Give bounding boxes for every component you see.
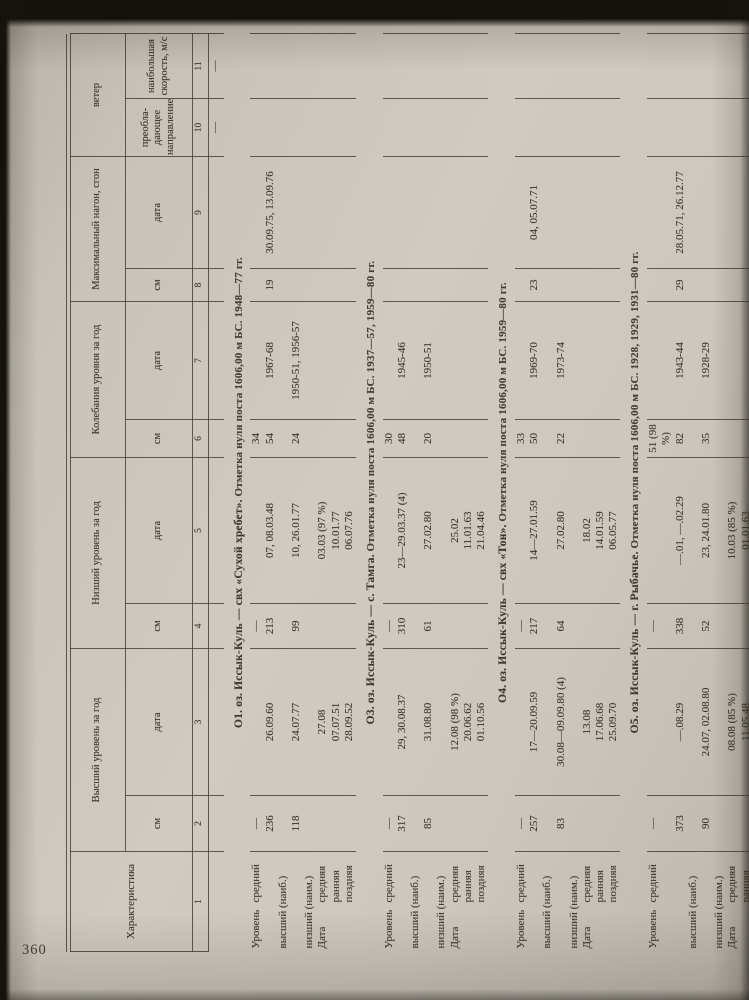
data-cell — [449, 157, 462, 269]
data-cell: 50 — [528, 420, 554, 458]
section-title: О5. оз. Иссык-Куль — г. Рыбачье. Отметка… — [620, 34, 647, 952]
data-cell — [594, 99, 607, 157]
data-cell — [330, 796, 343, 852]
data-cell — [594, 604, 607, 649]
data-cell — [726, 99, 739, 157]
row-label-sub: поздняя — [343, 865, 356, 902]
col-number: 11 — [192, 34, 208, 99]
row-label: низший (наим.) — [422, 852, 448, 952]
data-cell — [607, 604, 620, 649]
col-number: 3 — [192, 649, 208, 796]
row-label: Датасредняя — [581, 852, 594, 952]
section-title: О3. оз. Иссык-Куль — с. Тамга. Отметка н… — [356, 34, 383, 952]
data-cell — [647, 458, 673, 604]
col-number: 8 — [192, 269, 208, 302]
data-row: Датасредняя13.0818.02 — [581, 34, 594, 952]
data-cell — [607, 269, 620, 302]
data-cell — [462, 420, 475, 458]
data-cell: 20 — [422, 420, 448, 458]
data-cell — [647, 157, 673, 269]
col-number: 4 — [192, 604, 208, 649]
data-cell — [316, 302, 329, 420]
data-cell — [343, 269, 356, 302]
data-cell — [343, 604, 356, 649]
row-label-sub: поздняя — [475, 865, 488, 902]
station-gauge-note: Отметка нуля поста 1606,00 м БС. 1959—80… — [497, 282, 509, 522]
data-cell — [330, 99, 343, 157]
data-cell: 1950-51 — [422, 302, 448, 420]
row-label-sub: средняя — [316, 866, 329, 903]
data-cell — [449, 99, 462, 157]
data-cell — [208, 302, 224, 420]
data-cell: 11.05.48 — [740, 649, 749, 796]
row-label-sub: средняя — [581, 866, 594, 903]
data-row: поздняя28.09.5206.07.76 — [343, 34, 356, 952]
data-cell: 90 — [700, 796, 726, 852]
row-label: Уровеньсредний — [250, 852, 263, 952]
data-cell: 18.02 — [581, 458, 594, 604]
data-cell — [475, 269, 488, 302]
data-cell — [250, 99, 263, 157]
data-cell: 03.03 (97 %) — [316, 458, 329, 604]
data-cell: —.01, —.02.29 — [674, 458, 700, 604]
data-cell — [674, 34, 700, 99]
rotated-table-area: Характеристика Высший уровень за год Низ… — [66, 34, 722, 952]
data-cell: 217 — [528, 604, 554, 649]
data-row: Датасредняя27.0803.03 (97 %) — [316, 34, 329, 952]
data-cell — [343, 302, 356, 420]
lake-levels-table: Характеристика Высший уровень за год Низ… — [70, 33, 749, 952]
data-cell — [343, 34, 356, 99]
data-cell — [475, 99, 488, 157]
data-cell — [330, 420, 343, 458]
data-cell — [475, 302, 488, 420]
data-cell: 64 — [555, 604, 581, 649]
data-row: низший (наим.)9024.07, 02.08.805223, 24.… — [700, 34, 726, 952]
row-label-sub: средняя — [449, 866, 462, 903]
station-name: О5. оз. Иссык-Куль — г. Рыбачье. — [629, 551, 641, 733]
data-cell: 25.02 — [449, 458, 462, 604]
data-cell — [555, 157, 581, 269]
data-cell: 29 — [674, 269, 700, 302]
data-cell — [250, 302, 263, 420]
header-cm: см — [125, 796, 192, 852]
row-label: высший (наиб.) — [674, 852, 700, 952]
data-cell — [250, 34, 263, 99]
data-cell — [330, 269, 343, 302]
data-cell — [726, 157, 739, 269]
data-cell: 07, 08.03.48 — [264, 458, 290, 604]
data-cell — [726, 302, 739, 420]
data-cell: 06.07.76 — [343, 458, 356, 604]
data-cell: 14—27.01.59 — [528, 458, 554, 604]
book-page-scan: 360 Характеристика Высший уровень за год… — [0, 0, 749, 1000]
data-cell — [316, 269, 329, 302]
data-cell — [726, 269, 739, 302]
data-cell: 48 — [396, 420, 422, 458]
data-cell — [316, 796, 329, 852]
data-cell — [208, 420, 224, 458]
data-cell — [290, 99, 316, 157]
data-row: Уровеньсредний——51 (98 %) — [647, 34, 673, 952]
data-cell — [449, 302, 462, 420]
row-label-main: Дата — [316, 903, 329, 949]
data-cell: — — [647, 604, 673, 649]
data-cell — [422, 157, 448, 269]
row-label-main: Дата — [581, 903, 594, 949]
data-cell: 1943-44 — [674, 302, 700, 420]
data-cell: 27.08 — [316, 649, 329, 796]
data-cell — [449, 604, 462, 649]
data-cell — [449, 420, 462, 458]
data-row: ранняя11.05.4801.01.63 — [740, 34, 749, 952]
data-cell — [555, 99, 581, 157]
data-cell — [740, 269, 749, 302]
header-column-numbers: 1 2 3 4 5 6 7 8 9 10 11 — [192, 34, 208, 952]
data-cell: 21.04.46 — [475, 458, 488, 604]
data-cell: 20.06.62 — [462, 649, 475, 796]
data-cell — [330, 34, 343, 99]
data-row: Уровеньсредний——33 — [515, 34, 528, 952]
data-cell: 99 — [290, 604, 316, 649]
data-cell — [740, 99, 749, 157]
page-number: 360 — [22, 942, 47, 959]
data-cell — [250, 458, 263, 604]
station-gauge-note: Отметка нуля поста 1606,00 м БС. 1937—57… — [365, 261, 377, 552]
data-cell — [740, 796, 749, 852]
row-label: ранняя — [330, 852, 343, 952]
data-cell: 06.05.77 — [607, 458, 620, 604]
data-cell — [208, 796, 224, 852]
row-label-main: Уровень — [250, 903, 263, 949]
data-row: поздняя01.10.5621.04.46 — [475, 34, 488, 952]
data-cell: 04, 05.07.71 — [528, 157, 554, 269]
data-row: низший (наим.)8330.08—09.09.80 (4)6427.0… — [555, 34, 581, 952]
data-cell: 24 — [290, 420, 316, 458]
data-row: высший (наиб.)31729, 30.08.3731023—29.03… — [396, 34, 422, 952]
row-label-sub: средний — [383, 864, 396, 902]
data-cell: 29, 30.08.37 — [396, 649, 422, 796]
data-cell: 52 — [700, 604, 726, 649]
data-cell — [383, 458, 396, 604]
station-name: О1. оз. Иссык-Куль — свх «Сухой хребет». — [233, 499, 245, 728]
row-label: Датасредняя — [316, 852, 329, 952]
photo-dark-edge-top — [0, 0, 749, 27]
row-label-sub: низший (наим.) — [303, 876, 316, 949]
data-cell: 12.08 (98 %) — [449, 649, 462, 796]
data-cell: 28.05.71, 26.12.77 — [674, 157, 700, 269]
data-cell — [726, 796, 739, 852]
row-label: высший (наиб.) — [264, 852, 290, 952]
header-wind-speed: наибольшая скорость, м/с — [125, 34, 192, 99]
data-cell: 01.10.56 — [475, 649, 488, 796]
data-cell: 1969-70 — [528, 302, 554, 420]
data-cell — [515, 157, 528, 269]
data-cell: 22 — [555, 420, 581, 458]
data-row: Датасредняя12.08 (98 %)25.02 — [449, 34, 462, 952]
col-number: 7 — [192, 302, 208, 420]
header-characteristic: Характеристика — [70, 852, 192, 952]
data-cell — [316, 604, 329, 649]
data-cell — [726, 34, 739, 99]
photo-dark-edge-left — [0, 0, 11, 1000]
row-label: поздняя — [343, 852, 356, 952]
data-cell — [740, 604, 749, 649]
header-group-row: Характеристика Высший уровень за год Низ… — [70, 34, 125, 952]
data-cell — [462, 302, 475, 420]
data-cell — [475, 604, 488, 649]
data-cell — [290, 269, 316, 302]
data-cell: 17—20.09.59 — [528, 649, 554, 796]
data-cell — [208, 458, 224, 604]
data-cell: 28.09.52 — [343, 649, 356, 796]
data-cell — [740, 302, 749, 420]
data-cell: — — [383, 604, 396, 649]
data-cell: 30 — [383, 420, 396, 458]
row-label-main: Уровень — [515, 903, 528, 949]
data-cell — [581, 420, 594, 458]
data-cell: 1950-51, 1956-57 — [290, 302, 316, 420]
row-label-sub: ранняя — [462, 870, 475, 902]
data-cell — [515, 34, 528, 99]
row-label-main: Дата — [726, 903, 739, 949]
data-cell — [316, 99, 329, 157]
row-label: высший (наиб.) — [528, 852, 554, 952]
data-cell — [515, 302, 528, 420]
section-title: О4. оз. Иссык-Куль — свх «Тон». Отметка … — [488, 34, 515, 952]
data-cell: 1945-46 — [396, 302, 422, 420]
data-cell: 10.01.77 — [330, 458, 343, 604]
photo-dark-edge-bottom — [0, 989, 749, 1000]
data-cell: — — [515, 796, 528, 852]
data-cell: 373 — [674, 796, 700, 852]
row-label: Уровеньсредний — [647, 852, 673, 952]
data-cell: 07.07.51 — [330, 649, 343, 796]
data-cell — [396, 34, 422, 99]
data-cell — [449, 796, 462, 852]
data-cell — [343, 99, 356, 157]
data-cell — [700, 34, 726, 99]
data-cell: 10.03 (85 %) — [726, 458, 739, 604]
data-cell — [383, 302, 396, 420]
data-cell — [555, 34, 581, 99]
data-cell: 08.08 (85 %) — [726, 649, 739, 796]
station-gauge-note: Отметка нуля поста 1606,00 м БС. 1948—77… — [233, 257, 245, 497]
data-cell — [343, 420, 356, 458]
data-cell: 34 — [250, 420, 263, 458]
data-cell — [208, 269, 224, 302]
data-cell — [316, 157, 329, 269]
data-cell — [343, 796, 356, 852]
section-title-row: О5. оз. Иссык-Куль — г. Рыбачье. Отметка… — [620, 34, 647, 952]
data-cell — [462, 99, 475, 157]
data-cell — [475, 157, 488, 269]
data-cell: 01.01.63 — [740, 458, 749, 604]
table-double-top-rule: Характеристика Высший уровень за год Низ… — [66, 34, 749, 952]
data-cell: 30.09.75, 13.09.76 — [264, 157, 290, 269]
header-date: дата — [125, 458, 192, 604]
data-row: высший (наиб.)25717—20.09.5921714—27.01.… — [528, 34, 554, 952]
data-cell: — — [383, 796, 396, 852]
data-cell: 1973-74 — [555, 302, 581, 420]
data-cell — [330, 157, 343, 269]
row-label: низший (наим.) — [700, 852, 726, 952]
data-cell — [330, 604, 343, 649]
row-label-sub: ранняя — [740, 870, 749, 902]
data-cell: 14.01.59 — [594, 458, 607, 604]
data-cell — [422, 269, 448, 302]
row-label: высший (наиб.) — [396, 852, 422, 952]
header-date: дата — [125, 649, 192, 796]
row-label-sub: низший (наим.) — [435, 876, 448, 949]
data-cell — [396, 99, 422, 157]
data-cell: 26.09.60 — [264, 649, 290, 796]
data-cell: 27.02.80 — [555, 458, 581, 604]
data-cell: 19 — [264, 269, 290, 302]
section-title-row: О3. оз. Иссык-Куль — с. Тамга. Отметка н… — [356, 34, 383, 952]
no-wind-data-row: —— — [208, 34, 224, 952]
data-cell — [316, 34, 329, 99]
data-cell: 213 — [264, 604, 290, 649]
data-cell — [449, 34, 462, 99]
station-name: О3. оз. Иссык-Куль — с. Тамга. — [365, 554, 377, 724]
header-group-wind: ветер — [70, 34, 125, 157]
header-group-highest-level: Высший уровень за год — [70, 649, 125, 852]
data-cell — [422, 34, 448, 99]
data-cell: 1928-29 — [700, 302, 726, 420]
data-cell — [515, 458, 528, 604]
data-cell: 31.08.80 — [422, 649, 448, 796]
data-cell — [449, 269, 462, 302]
data-row: Датасредняя08.08 (85 %)10.03 (85 %) — [726, 34, 739, 952]
data-cell — [607, 157, 620, 269]
data-cell: 24.07, 02.08.80 — [700, 649, 726, 796]
data-cell — [647, 649, 673, 796]
row-label-sub: высший (наиб.) — [687, 876, 700, 949]
header-sub-row: см дата см дата см дата см дата преобла-… — [125, 34, 192, 952]
data-cell — [594, 157, 607, 269]
data-cell — [740, 420, 749, 458]
data-cell — [581, 34, 594, 99]
data-cell — [594, 796, 607, 852]
data-cell — [607, 99, 620, 157]
data-row: ранняя07.07.5110.01.77 — [330, 34, 343, 952]
data-cell: 13.08 — [581, 649, 594, 796]
data-cell — [607, 302, 620, 420]
data-cell: 118 — [290, 796, 316, 852]
data-cell — [383, 34, 396, 99]
row-label-sub: поздняя — [607, 865, 620, 902]
data-cell — [726, 604, 739, 649]
data-cell — [396, 269, 422, 302]
row-label: поздняя — [475, 852, 488, 952]
data-cell — [264, 99, 290, 157]
data-cell: 82 — [674, 420, 700, 458]
data-cell: 11.01.63 — [462, 458, 475, 604]
data-cell: 23, 24.01.80 — [700, 458, 726, 604]
data-row: Уровеньсредний——34 — [250, 34, 263, 952]
section-title-row: О4. оз. Иссык-Куль — свх «Тон». Отметка … — [488, 34, 515, 952]
data-cell — [647, 34, 673, 99]
data-cell — [475, 796, 488, 852]
col-number: 9 — [192, 157, 208, 269]
row-label-sub: ранняя — [330, 870, 343, 902]
row-label: Уровеньсредний — [383, 852, 396, 952]
row-label-sub: средний — [647, 864, 660, 902]
header-group-level-fluctuations: Колебания уровня за год — [70, 302, 125, 458]
row-label: низший (наим.) — [555, 852, 581, 952]
data-cell: — — [250, 796, 263, 852]
data-cell — [250, 157, 263, 269]
header-group-lowest-level: Низший уровень за год — [70, 458, 125, 649]
data-cell: 23 — [528, 269, 554, 302]
data-cell: 1967-68 — [264, 302, 290, 420]
data-cell: — — [647, 796, 673, 852]
row-label: Датасредняя — [726, 852, 739, 952]
data-row: высший (наиб.)23626.09.6021307, 08.03.48… — [264, 34, 290, 952]
row-label-sub: низший (наим.) — [568, 876, 581, 949]
data-cell: 24.07.77 — [290, 649, 316, 796]
row-label-main: Уровень — [647, 903, 660, 949]
data-cell — [462, 269, 475, 302]
data-cell: — — [515, 604, 528, 649]
data-cell — [594, 34, 607, 99]
col-number: 2 — [192, 796, 208, 852]
data-cell: 317 — [396, 796, 422, 852]
data-cell — [208, 649, 224, 796]
data-cell — [422, 99, 448, 157]
data-row: низший (наим.)11824.07.779910, 26.01.772… — [290, 34, 316, 952]
data-cell: 310 — [396, 604, 422, 649]
data-cell — [674, 99, 700, 157]
data-cell: — — [208, 99, 224, 157]
data-row: поздняя25.09.7006.05.77 — [607, 34, 620, 952]
header-cm: см — [125, 420, 192, 458]
row-label: Датасредняя — [449, 852, 462, 952]
data-cell — [264, 34, 290, 99]
data-cell — [581, 604, 594, 649]
col-number: 5 — [192, 458, 208, 604]
data-row: высший (наиб.)373—.08.29338—.01, —.02.29… — [674, 34, 700, 952]
data-cell — [555, 269, 581, 302]
data-cell — [528, 34, 554, 99]
row-label-sub: высший (наиб.) — [409, 876, 422, 949]
section-title: О1. оз. Иссык-Куль — свх «Сухой хребет».… — [224, 34, 251, 952]
data-cell — [647, 302, 673, 420]
header-group-max-surge: Максимальный нагон, сгон — [70, 157, 125, 302]
row-label-main: Уровень — [383, 903, 396, 949]
col-number: 1 — [192, 852, 208, 952]
header-date: дата — [125, 302, 192, 420]
data-cell: 54 — [264, 420, 290, 458]
data-cell — [740, 34, 749, 99]
data-cell — [316, 420, 329, 458]
data-row: Уровеньсредний——30 — [383, 34, 396, 952]
header-cm: см — [125, 269, 192, 302]
data-cell — [700, 99, 726, 157]
data-cell — [208, 157, 224, 269]
data-cell — [383, 157, 396, 269]
data-cell: 27.02.80 — [422, 458, 448, 604]
data-cell: — — [208, 34, 224, 99]
data-cell — [290, 157, 316, 269]
data-cell — [700, 157, 726, 269]
row-label-sub: высший (наиб.) — [277, 876, 290, 949]
data-cell — [515, 649, 528, 796]
row-label-sub: высший (наиб.) — [541, 876, 554, 949]
row-label — [208, 852, 224, 952]
data-cell: 25.09.70 — [607, 649, 620, 796]
